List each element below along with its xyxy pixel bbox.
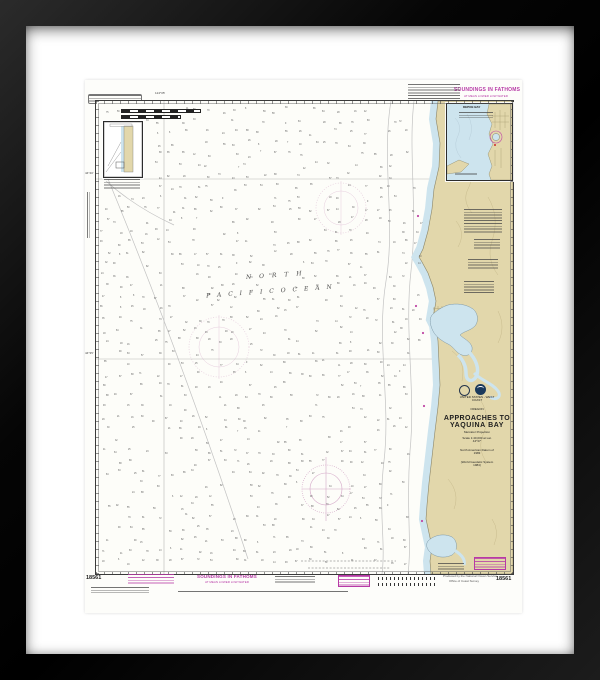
sounding-depth: 18 [379,217,382,220]
sounding-depth: 79 [128,516,131,519]
sounding-depth: 52 [381,375,384,378]
sounding-depth: 80 [309,375,312,378]
sounding-depth: 16 [354,110,357,113]
sounding-depth: 48 [348,426,351,429]
sounding-depth: 31 [182,207,185,210]
sounding-depth: 30 [391,342,394,345]
sounding-depth: 68 [362,395,365,398]
sounding-depth: 84 [389,276,392,279]
sounding-depth: 39 [289,475,292,478]
sounding-depth: 17 [414,242,417,245]
sounding-depth: 37 [296,306,299,309]
sounding-depth: 53 [244,184,247,187]
sounding-depth: 69 [285,106,288,109]
sounding-depth: 34 [312,518,315,521]
sounding-depth: 6 [172,495,173,498]
sounding-depth: 66 [339,342,342,345]
sounding-depth: 82 [264,417,267,420]
sounding-depth: 94 [419,318,422,321]
sounding-depth: 14 [273,561,276,564]
sounding-depth: 17 [180,375,183,378]
sounding-depth: 81 [392,321,395,324]
sounding-depth: 84 [130,526,133,529]
sounding-depth: 64 [114,451,117,454]
sounding-depth: 46 [377,429,380,432]
sounding-depth: 20 [231,331,234,334]
sounding-depth: 86 [208,452,211,455]
sounding-depth: 10 [197,264,200,267]
sounding-depth: 9 [285,122,286,125]
sounding-depth: 63 [419,255,422,258]
sounding-depth: 10 [299,143,302,146]
sounding-depth: 55 [127,506,130,509]
sounding-depth: 79 [222,319,225,322]
sounding-depth: 26 [247,463,250,466]
sounding-depth: 90 [113,262,116,265]
sounding-depth: 86 [283,381,286,384]
chart-title-line1: APPROACHES TO [441,415,513,422]
sounding-depth: 84 [322,110,325,113]
sounding-depth: 86 [403,386,406,389]
sounding-depth: 77 [338,375,341,378]
sounding-depth: 81 [142,470,145,473]
sounding-depth: 87 [274,151,277,154]
sounding-depth: 43 [399,417,402,420]
sounding-depth: 38 [232,254,235,257]
bottom-disclaimer-line [178,591,348,593]
sounding-depth: 36 [366,371,369,374]
sounding-depth: 90 [168,363,171,366]
sounding-depth: 54 [352,407,355,410]
sounding-depth: 23 [231,530,234,533]
sounding-depth: 66 [315,360,318,363]
sounding-depth: 22 [196,299,199,302]
sounding-depth: 54 [273,205,276,208]
sounding-depth: 87 [165,417,168,420]
sounding-depth: 29 [195,496,198,499]
sounding-depth: 57 [211,304,214,307]
sounding-depth: 32 [389,407,392,410]
sounding-depth: 82 [142,251,145,254]
sounding-depth: 41 [103,448,106,451]
sounding-depth: 65 [295,187,298,190]
sounding-depth: 82 [258,208,261,211]
sounding-depth: 39 [141,404,144,407]
sounding-depth: 89 [302,518,305,521]
sounding-depth: 45 [354,507,357,510]
sounding-depth: 88 [237,407,240,410]
sounding-depth: 85 [142,528,145,531]
sounding-depth: 26 [393,425,396,428]
sounding-depth: 22 [157,375,160,378]
sounding-depth: 28 [338,221,341,224]
sounding-depth: 25 [195,362,198,365]
sounding-depth: 43 [257,506,260,509]
sounding-depth: 70 [207,109,210,112]
sounding-depth: 59 [169,530,172,533]
sounding-depth: 60 [364,363,367,366]
sounding-depth: 70 [262,121,265,124]
sounding-depth: 53 [274,231,277,234]
sounding-depth: 84 [337,508,340,511]
sounding-depth: 81 [181,385,184,388]
sounding-depth: 6 [303,261,304,264]
sounding-depth: 13 [166,229,169,232]
sounding-depth: 8 [120,296,121,299]
sounding-depth: 90 [350,461,353,464]
sounding-depth: 66 [322,374,325,377]
sounding-depth: 81 [288,338,291,341]
graduation-ticks-left [96,101,99,574]
chart-number-bottom-right: 18561 [496,576,511,582]
sounding-depth: 80 [244,539,247,542]
sounding-depth: 84 [249,471,252,474]
sounding-depth: 29 [183,175,186,178]
sounding-depth: 86 [179,253,182,256]
sounding-depth: 41 [106,539,109,542]
sounding-depth: 57 [209,515,212,518]
sounding-depth: 19 [130,230,133,233]
sounding-depth: 89 [337,282,340,285]
sounding-depth: 68 [230,316,233,319]
sounding-depth: 70 [142,296,145,299]
sounding-depth: 70 [207,265,210,268]
noaa-gull-icon [477,386,484,391]
sounding-depth: 60 [207,176,210,179]
sounding-depth: 52 [341,384,344,387]
sounding-depth: 80 [220,206,223,209]
sounding-depth: 7 [360,385,361,388]
sounding-depth: 31 [185,513,188,516]
sounding-depth: 54 [296,469,299,472]
sounding-depth: 76 [300,154,303,157]
sounding-depth: 25 [218,266,221,269]
sounding-depth: 61 [336,352,339,355]
sounding-depth: 80 [298,218,301,221]
sounding-depth: 47 [220,439,223,442]
sounding-depth: 27 [170,316,173,319]
sounding-depth: 94 [235,129,238,132]
land-magenta-note-box [474,557,506,570]
sounding-depth: 75 [388,461,391,464]
sounding-depth: 6 [170,547,171,550]
sounding-depth: 77 [337,249,340,252]
sounding-depth: 74 [378,241,381,244]
sounding-depth: 54 [168,241,171,244]
sounding-depth: 73 [316,320,319,323]
sounding-depth: 55 [366,504,369,507]
sounding-depth: 41 [120,552,123,555]
sounding-depth: 71 [273,536,276,539]
sounding-depth: 75 [205,185,208,188]
sounding-depth: 86 [194,208,197,211]
sounding-depth: 49 [194,464,197,467]
sounding-depth: 17 [365,209,368,212]
sounding-depth: 89 [103,384,106,387]
sounding-depth: 77 [220,364,223,367]
sounding-depth: 61 [402,308,405,311]
sounding-depth: 73 [113,221,116,224]
sounding-depth: 24 [348,184,351,187]
sounding-depth: 87 [295,560,298,563]
sounding-depth: 88 [288,462,291,465]
sounding-depth: 53 [297,196,300,199]
sounding-depth: 27 [404,563,407,566]
sounding-depth: 53 [181,263,184,266]
sounding-depth: 35 [286,418,289,421]
sounding-depth: 63 [129,549,132,552]
main-chart-area: 7559172111587046338595869868428164234553… [95,100,514,575]
sounding-depth: 34 [394,375,397,378]
sounding-depth: 31 [256,515,259,518]
sounding-depth: 8 [350,341,351,344]
sounding-depth: 93 [155,228,158,231]
sounding-depth: 87 [154,297,157,300]
white-mat: SOUNDINGS IN FATHOMS AT MEAN LOWER LOW W… [26,26,574,654]
sounding-depth: 10 [127,363,130,366]
sounding-depth: 17 [340,441,343,444]
sounding-depth: 66 [185,129,188,132]
sounding-depth: 34 [224,419,227,422]
sounding-depth: 41 [310,526,313,529]
sounding-depth: 54 [210,559,213,562]
sounding-depth: 42 [405,426,408,429]
sounding-depth: 11 [338,364,340,367]
sounding-depth: 61 [126,252,129,255]
sounding-depth: 8 [245,107,246,110]
sounding-depth: 25 [250,343,253,346]
sounding-depth: 43 [387,185,390,188]
sounding-depth: 54 [260,184,263,187]
sounding-depth: 28 [323,121,326,124]
sounding-depth: 29 [235,394,238,397]
sounding-depth: 86 [179,427,182,430]
sounding-depth: 92 [277,441,280,444]
sounding-depth: 53 [388,220,391,223]
sounding-depth: 52 [250,255,253,258]
sounding-depth: 49 [198,426,201,429]
sounding-depth: 33 [140,480,143,483]
sounding-depth: 74 [402,252,405,255]
sounding-depth: 71 [390,493,393,496]
sounding-depth: 12 [157,238,160,241]
sounding-depth: 55 [211,504,214,507]
sounding-depth: 29 [191,437,194,440]
sounding-depth: 46 [160,307,163,310]
sounding-depth: 41 [360,266,363,269]
sounding-depth: 82 [407,338,410,341]
sounding-depth: 62 [210,210,213,213]
sounding-depth: 69 [171,253,174,256]
sounding-depth: 34 [191,502,194,505]
sounding-depth: 73 [273,244,276,247]
sounding-depth: 28 [337,111,340,114]
sounding-depth: 86 [100,305,103,308]
sounding-depth: 37 [301,504,304,507]
sounding-depth: 12 [193,153,196,156]
sounding-depth: 15 [417,294,420,297]
sounding-depth: 29 [208,386,211,389]
chart-paper: SOUNDINGS IN FATHOMS AT MEAN LOWER LOW W… [85,80,522,613]
sounding-depth: 72 [375,319,378,322]
sounding-depth: 42 [180,495,183,498]
sounding-depth: 28 [365,219,368,222]
inset-depoe-bay: DEPOE BAY [446,103,513,181]
sounding-depth: 18 [296,548,299,551]
sounding-depth: 81 [298,353,301,356]
sounding-depth: 46 [206,129,209,132]
sounding-depth: 60 [238,418,241,421]
sounding-depth: 67 [159,185,162,188]
sounding-depth: 70 [325,260,328,263]
sounding-depth: 48 [288,496,291,499]
sounding-depth: 64 [245,396,248,399]
sounding-depth: 62 [406,151,409,154]
sounding-depth: 36 [113,275,116,278]
sounding-depth: 34 [388,528,391,531]
sounding-depth: 90 [119,350,122,353]
sounding-depth: 17 [194,253,197,256]
sounding-depth: 39 [199,320,202,323]
sounding-depth: 53 [221,539,224,542]
sounding-depth: 90 [310,495,313,498]
sounding-depth: 79 [276,474,279,477]
sounding-depth: 88 [119,462,122,465]
sounding-depth: 25 [128,448,131,451]
commerce-seal-icon [459,385,470,396]
sounding-depth: 44 [403,364,406,367]
sounding-depth: 93 [285,561,288,564]
sounding-depth: 70 [334,529,337,532]
sounding-depth: 13 [159,549,162,552]
sounding-depth: 94 [362,538,365,541]
sounding-depth: 90 [180,437,183,440]
sounding-depth: 34 [329,485,332,488]
sounding-depth: 77 [158,475,161,478]
sounding-depth: 52 [327,496,330,499]
sounding-depth: 29 [289,549,292,552]
sounding-depth: 10 [340,295,343,298]
sounding-depth: 59 [153,507,156,510]
sounding-depth: 8 [342,552,343,555]
sounding-depth: 79 [258,452,261,455]
sounding-depth: 82 [146,265,149,268]
sounding-depth: 86 [379,507,382,510]
sounding-depth: 82 [220,484,223,487]
sounding-depth: 92 [199,551,202,554]
sounding-depth: 6 [206,428,207,431]
sounding-depth: 87 [119,375,122,378]
left-graduation-label-upper: 44°40' [85,172,93,175]
sounding-depth: 74 [334,128,337,131]
sounding-depth: 70 [394,121,397,124]
sounding-depth: 72 [316,394,319,397]
sounding-depth: 44 [336,208,339,211]
sounding-depth: 68 [406,516,409,519]
sounding-depth: 92 [223,233,226,236]
land-note-block [464,281,494,293]
sounding-depth: 85 [104,360,107,363]
sounding-depth: 89 [129,459,132,462]
sounding-depth: 18 [391,537,394,540]
sounding-depth: 82 [309,210,312,213]
sounding-depth: 43 [198,164,201,167]
sounding-depth: 61 [272,298,275,301]
sounding-depth: 35 [391,562,394,565]
soundings-heading-top: SOUNDINGS IN FATHOMS [454,88,520,94]
sounding-depth: 46 [340,430,343,433]
sounding-depth: 74 [243,163,246,166]
sounding-depth: 77 [157,207,160,210]
sounding-depth: 44 [315,161,318,164]
sounding-depth: 34 [169,219,172,222]
sounding-depth: 56 [285,130,288,133]
land-note-block [438,563,464,571]
sounding-depth: 38 [106,283,109,286]
sounding-depth: 82 [340,326,343,329]
graduation-ticks-top [96,101,513,104]
sounding-depth: 59 [375,519,378,522]
sounding-depth: 75 [361,152,364,155]
sounding-depth: 27 [314,218,317,221]
sounding-depth: 70 [326,503,329,506]
sounding-depth: 16 [145,233,148,236]
sounding-depth: 69 [310,546,313,549]
sounding-depth: 81 [335,231,338,234]
sounding-depth: 58 [290,394,293,397]
sounding-depth: 48 [225,330,228,333]
sounding-depth: 33 [193,118,196,121]
sounding-depth: 24 [101,272,104,275]
sounding-depth: 19 [393,241,396,244]
sounding-depth: 25 [350,130,353,133]
projection-line3: North American Datum of 1983 [459,449,495,455]
sounding-depth: 86 [140,383,143,386]
sounding-depth: 83 [309,415,312,418]
sounding-depth: 90 [152,420,155,423]
sounding-depth: 81 [380,548,383,551]
sounding-depth: 23 [142,197,145,200]
sounding-depth: 42 [142,559,145,562]
sounding-depth: 7 [287,141,288,144]
sounding-depth: 53 [141,242,144,245]
sounding-depth: 65 [167,151,170,154]
sounding-depth: 84 [324,229,327,232]
sounding-depth: 90 [341,460,344,463]
sounding-depth: 20 [405,129,408,132]
sounding-depth: 8 [119,253,120,256]
sounding-depth: 32 [326,451,329,454]
sounding-depth: 46 [205,486,208,489]
sounding-depth: 15 [127,404,130,407]
sounding-depth: 94 [232,471,235,474]
sounding-depth: 18 [329,196,332,199]
sounding-depth: 63 [236,153,239,156]
sounding-depth: 35 [206,528,209,531]
sounding-depth: 68 [243,550,246,553]
sounding-depth: 9 [246,361,247,364]
sounding-depth: 66 [182,529,185,532]
bottom-magenta-box [338,575,370,587]
sounding-depth: 55 [263,298,266,301]
sounding-depth: 42 [364,416,367,419]
sounding-depth: 51 [198,186,201,189]
sounding-depth: 83 [364,547,367,550]
sounding-depth: 31 [231,119,234,122]
sounding-depth: 88 [297,241,300,244]
sounding-depth: 54 [340,305,343,308]
sounding-depth: 49 [366,232,369,235]
